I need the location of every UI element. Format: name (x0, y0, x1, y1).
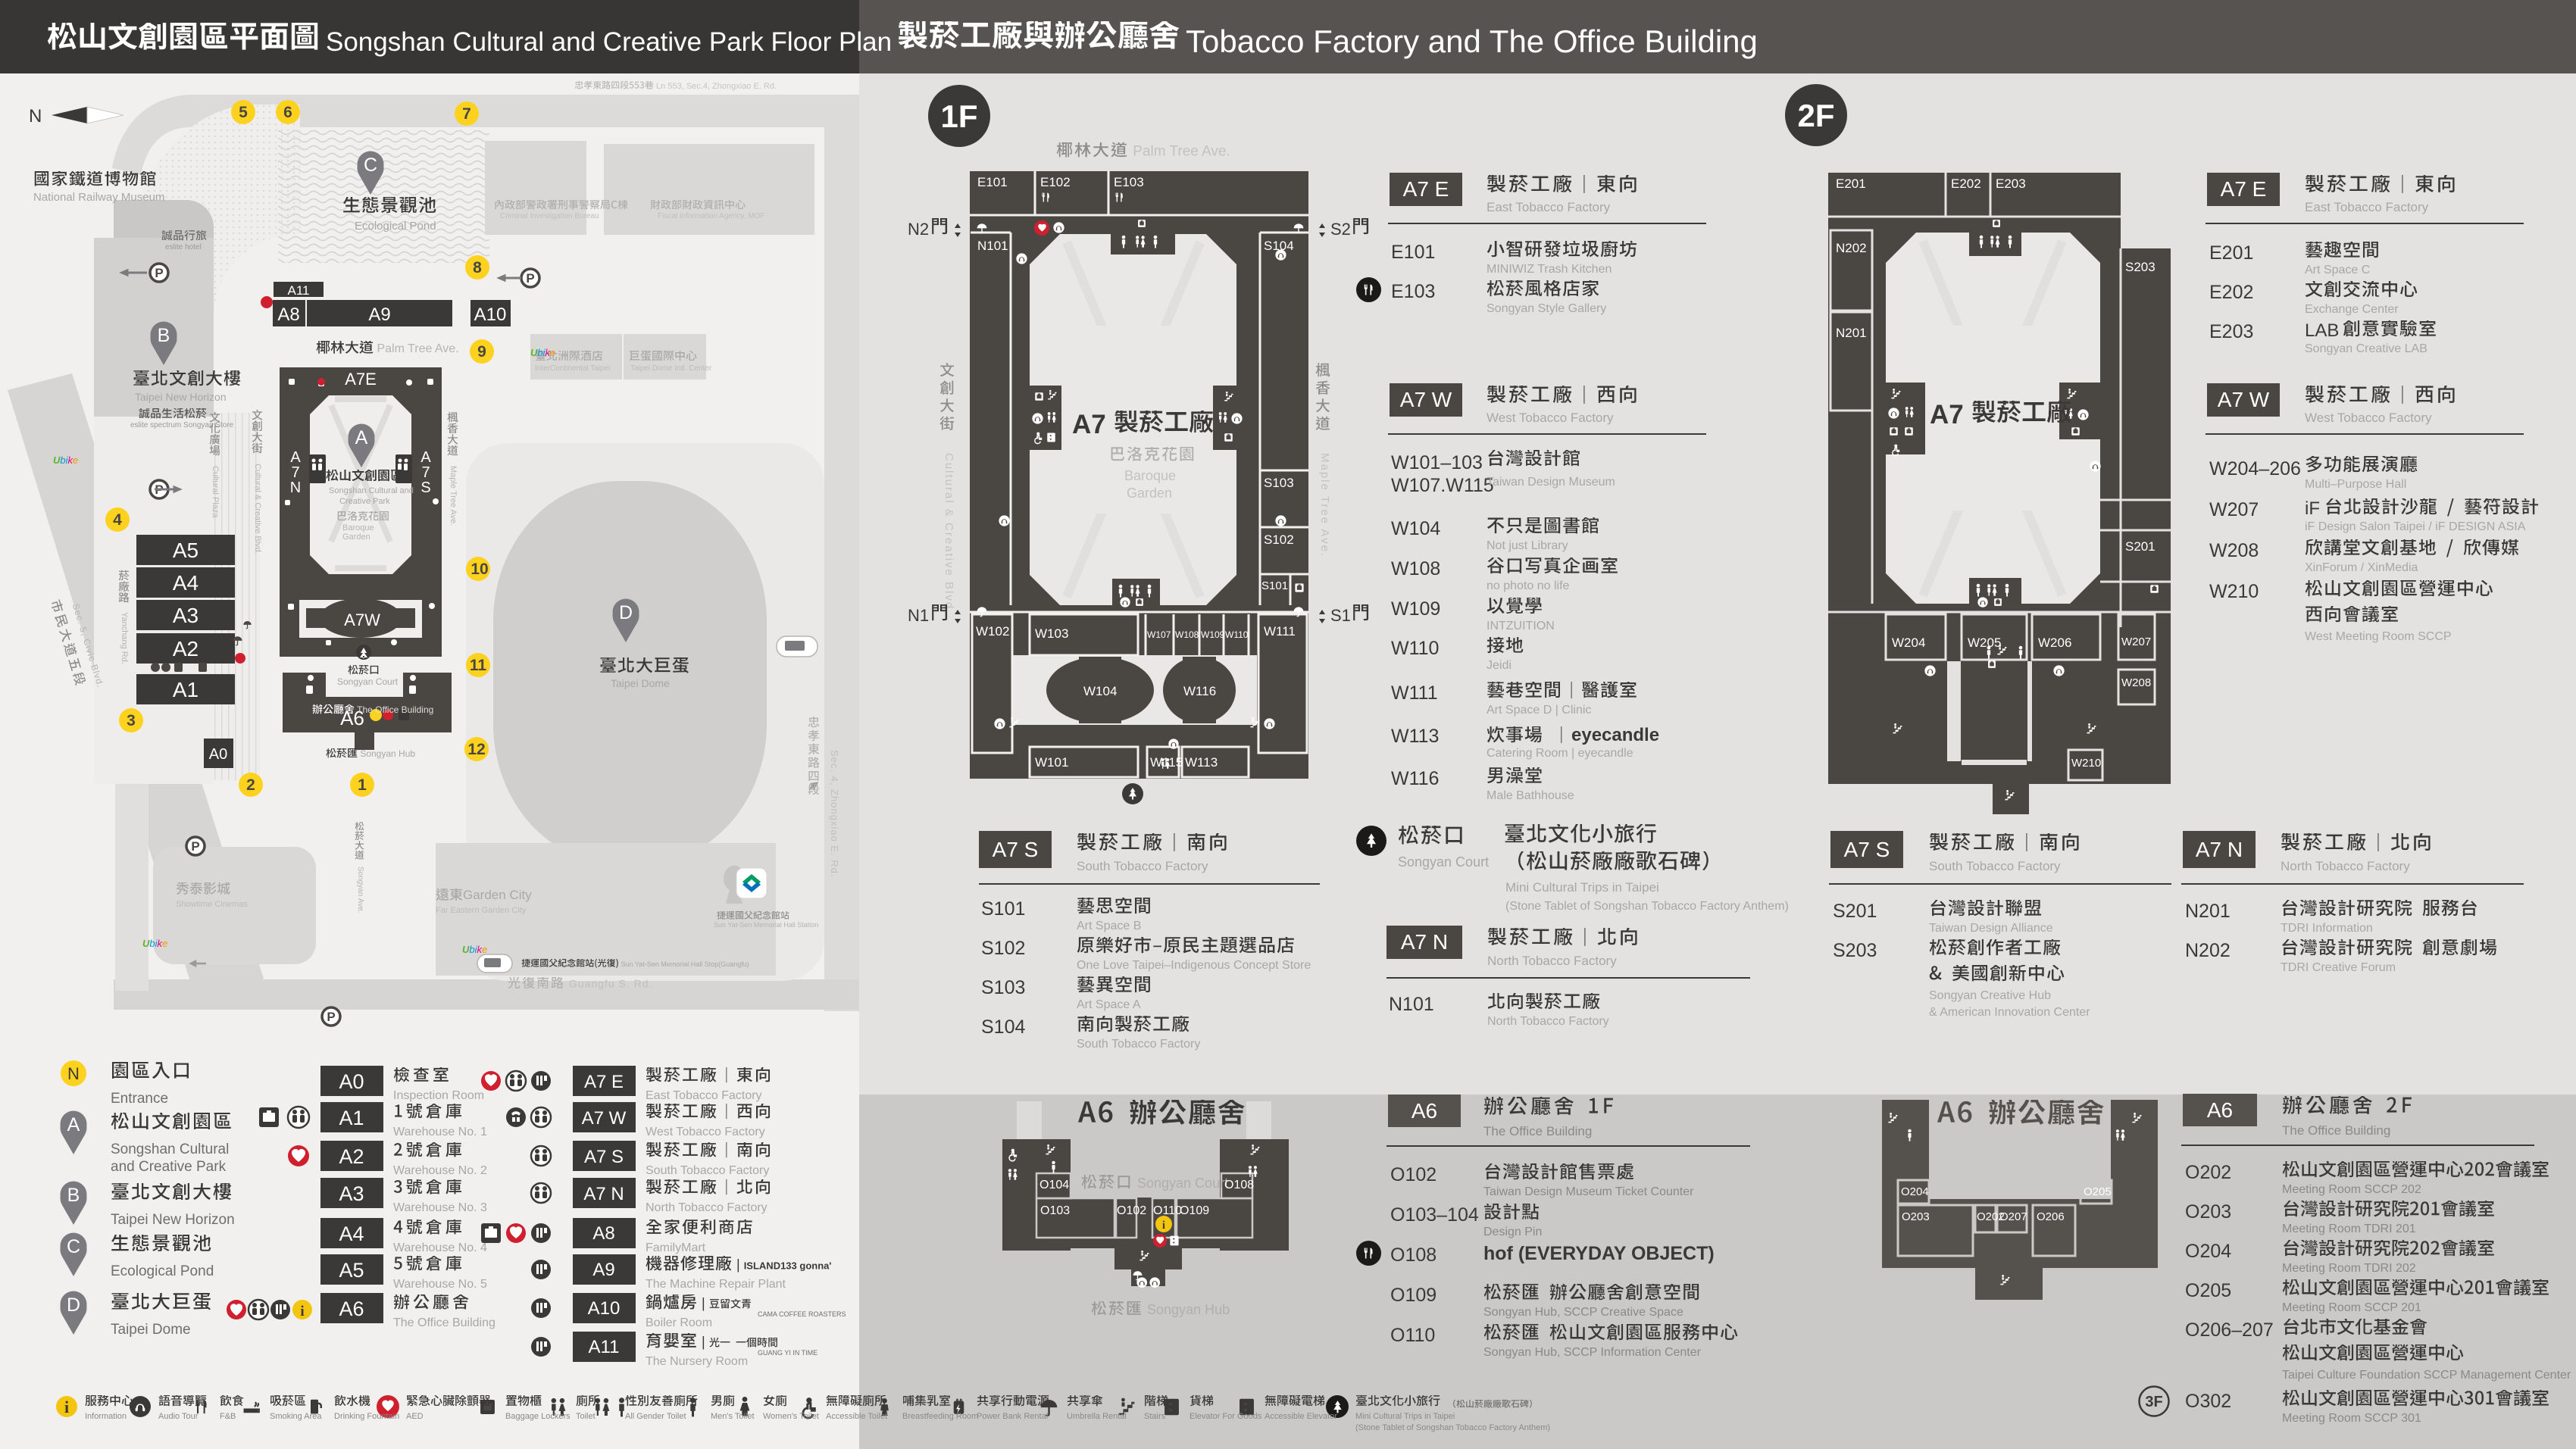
svg-text:A7E: A7E (345, 370, 377, 389)
svg-text:2: 2 (246, 776, 255, 794)
svg-text:7: 7 (462, 105, 471, 123)
svg-text:i: i (64, 1397, 69, 1416)
svg-text:A5: A5 (339, 1259, 364, 1282)
svg-text:A3: A3 (173, 604, 199, 627)
svg-text:A7 W: A7 W (582, 1108, 627, 1129)
svg-text:A9: A9 (592, 1260, 614, 1280)
svg-text:S: S (420, 479, 430, 496)
svg-text:A7W: A7W (344, 611, 380, 629)
svg-text:A0: A0 (209, 746, 227, 763)
svg-text:B: B (158, 325, 170, 346)
svg-text:P: P (526, 271, 534, 286)
svg-text:10: 10 (470, 561, 488, 578)
svg-text:3: 3 (127, 712, 136, 729)
svg-text:A8: A8 (277, 304, 299, 325)
svg-text:i: i (1162, 1219, 1165, 1232)
svg-text:A10: A10 (588, 1298, 621, 1319)
svg-text:A5: A5 (173, 539, 199, 562)
svg-text:4: 4 (113, 511, 122, 529)
svg-text:7: 7 (421, 464, 430, 481)
svg-text:A2: A2 (339, 1145, 364, 1168)
svg-text:A1: A1 (339, 1107, 364, 1129)
svg-text:A: A (290, 449, 301, 466)
svg-text:A9: A9 (368, 304, 390, 325)
svg-text:A11: A11 (589, 1337, 620, 1357)
svg-text:N: N (29, 106, 42, 126)
svg-text:7: 7 (291, 464, 299, 481)
svg-text:A4: A4 (173, 571, 199, 595)
svg-text:3F: 3F (2145, 1394, 2162, 1410)
svg-text:5: 5 (239, 104, 248, 121)
svg-text:A6: A6 (339, 1298, 364, 1320)
svg-text:A0: A0 (339, 1070, 364, 1093)
svg-text:A: A (67, 1114, 80, 1135)
svg-text:P: P (191, 839, 199, 854)
svg-text:C: C (67, 1236, 80, 1257)
svg-text:N: N (67, 1064, 80, 1083)
svg-text:A10: A10 (474, 304, 507, 325)
svg-text:A: A (355, 427, 368, 448)
svg-text:A3: A3 (339, 1182, 364, 1205)
svg-text:8: 8 (473, 259, 482, 276)
svg-text:N: N (290, 479, 301, 496)
svg-text:A2: A2 (173, 637, 199, 660)
svg-text:D: D (67, 1294, 80, 1316)
svg-text:P: P (327, 1010, 335, 1024)
svg-text:A4: A4 (339, 1223, 364, 1245)
svg-text:A7 S: A7 S (584, 1147, 624, 1167)
svg-text:2F: 2F (1797, 98, 1834, 133)
svg-text:A7 E: A7 E (584, 1072, 624, 1092)
svg-text:A11: A11 (288, 283, 310, 298)
svg-text:9: 9 (477, 343, 486, 361)
svg-text:P: P (155, 266, 163, 280)
svg-text:1: 1 (358, 776, 367, 794)
svg-text:A1: A1 (173, 678, 199, 701)
svg-text:A7 N: A7 N (583, 1184, 624, 1204)
svg-text:6: 6 (283, 104, 292, 121)
svg-text:i: i (300, 1304, 304, 1319)
svg-text:B: B (67, 1185, 80, 1206)
svg-text:11: 11 (470, 657, 487, 674)
svg-text:1F: 1F (940, 98, 977, 134)
svg-text:D: D (619, 602, 633, 623)
svg-text:12: 12 (467, 741, 485, 758)
svg-text:A: A (420, 449, 431, 466)
svg-text:C: C (364, 155, 377, 176)
svg-text:A8: A8 (592, 1223, 614, 1244)
